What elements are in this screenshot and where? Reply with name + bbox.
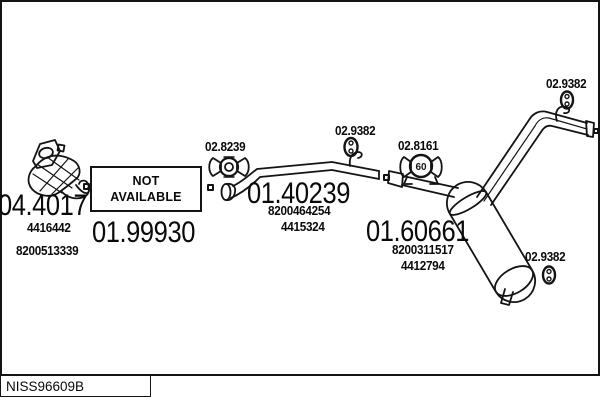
rubber-hanger-icon: [345, 138, 358, 156]
clamp-diameter-label: 60: [415, 162, 427, 173]
drawing-number: NISS96609B: [6, 379, 84, 394]
rubber-hanger-icon: [561, 92, 573, 109]
catalyst-code: 04.4017: [0, 189, 87, 223]
not-available-line1: NOT: [133, 173, 160, 189]
center-pipe-ref-2: 4415324: [281, 219, 325, 234]
connection-dot: [594, 129, 598, 133]
not-available-line2: AVAILABLE: [110, 189, 181, 205]
connection-dot: [208, 185, 213, 190]
tail-pipe-drawing: [477, 107, 594, 205]
rear-silencer-ref-2: 4412794: [401, 258, 445, 273]
catalyst-ref-2: 8200513339: [16, 243, 78, 258]
front-pipe-code: 01.99930: [92, 216, 195, 250]
hanger-center-code: 02.9382: [335, 123, 375, 138]
front-clamp-icon: [209, 157, 249, 177]
clamp-rear-code: 02.8161: [398, 138, 438, 153]
hanger-bottom-right-code: 02.9382: [525, 249, 565, 264]
clamp-front-code: 02.8239: [205, 139, 245, 154]
not-available-box: NOT AVAILABLE: [90, 166, 202, 212]
center-pipe-ref-1: 8200464254: [268, 203, 330, 218]
hanger-top-right-code: 02.9382: [546, 76, 586, 91]
exhaust-parts-diagram: 60: [0, 0, 600, 400]
rear-silencer-ref-1: 8200311517: [392, 242, 454, 257]
catalyst-ref-1: 4416442: [27, 220, 71, 235]
drawing-number-box: NISS96609B: [0, 376, 151, 397]
rubber-hanger-icon: [543, 267, 555, 284]
